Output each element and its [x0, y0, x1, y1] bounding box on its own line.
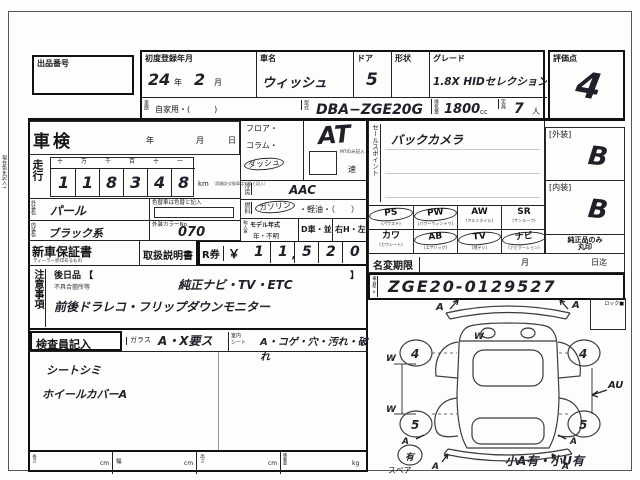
r-ticket-digit: 0	[350, 244, 360, 260]
front-bumper-inner	[450, 313, 566, 320]
note-line1: 純正ナビ・TV・ETC	[178, 276, 293, 293]
load-unit: kg	[352, 461, 359, 468]
front-left-door-flap	[436, 342, 458, 378]
shaken-row: 車検 年 月 日	[28, 121, 240, 155]
equip-ps: PS	[369, 206, 413, 223]
windshield-glyph	[473, 350, 543, 386]
spare-label: スペア	[388, 466, 411, 474]
ext-color-value: パール	[50, 202, 86, 219]
mileage-digit: 4	[154, 173, 165, 192]
rear-left-door-flap	[435, 398, 458, 437]
car-name-label: 車名	[260, 54, 276, 63]
length-label: 長さ	[31, 454, 36, 463]
middle-column: フロア・ コラム・ ダッシュ AT MTのみ記入 速 冷房 AAC 燃料 ガソリ…	[240, 121, 368, 241]
r-ticket-digit: 5	[302, 244, 312, 260]
genuine-note-line2: 丸印	[546, 244, 624, 251]
name-change-row: 名変期限 月 日迄	[368, 254, 625, 273]
mark-left-w2: W	[386, 405, 397, 415]
rear-bumper-inner	[448, 449, 568, 455]
colors-block: 外装色 パール 内装色 ブラック系 色替車は色替と記入 外装カラーNo. 070	[28, 199, 240, 241]
displacement-label: 排気量	[431, 99, 438, 114]
shaken-year-label: 年	[146, 136, 154, 145]
equipment-row2: カワ(カワシート) AB(エアバッグ) TV(地デジ) ナビ(ナビゲーション)	[368, 230, 545, 254]
header-table: 初度登録年月 24 年 2 月 車名 ウィッシュ ドア 5 形状 グレード 1.…	[140, 50, 545, 120]
manual-label: 取扱説明書	[143, 247, 193, 262]
equip-tv-name: (地デジ)	[460, 245, 499, 250]
mark-bottom-left-a: A	[401, 437, 409, 447]
model-year-label: モデル年式	[250, 220, 280, 229]
auction-sheet: 現在色を記入→ 出品番号 初度登録年月 24 年 2 月 車名 ウィッシュ ドア…	[0, 0, 640, 480]
rear-window-glyph	[472, 418, 544, 444]
digit-header: 一	[177, 159, 183, 166]
docs-row: 新車保証書 ディーラー捺印あるもの 取扱説明書 R券 ￥ 1 1 , 5 2 0	[28, 241, 368, 266]
recycle-ticket-label: R券	[202, 246, 224, 261]
later-item-label: 後日品 【	[54, 268, 93, 281]
glass-label: ガラス	[126, 337, 151, 345]
shaken-day-label: 日	[228, 136, 236, 145]
exterior-grade-value: B	[586, 141, 609, 173]
model-code-label: 型式	[301, 100, 308, 110]
mileage-digit: 1	[82, 173, 93, 192]
width-unit: cm	[184, 461, 193, 468]
mark-spare-present: 有	[405, 452, 416, 463]
rear-bumper-right-arrow	[552, 454, 558, 462]
capacity-value: 7	[514, 101, 524, 117]
notes-label: 注意事項	[32, 269, 46, 327]
chassis-label: 車台No.	[371, 276, 378, 297]
mark-wheel-rr: 5	[579, 418, 587, 432]
glass-options: A・X要ス	[158, 332, 213, 349]
interior-grade-label: [内装]	[549, 183, 571, 192]
car-name-value: ウィッシュ	[262, 72, 327, 91]
seat-options: A・コゲ・穴・汚れ・破れ	[260, 333, 368, 363]
margin-note: 現在色を記入→	[1, 155, 6, 191]
displacement-unit: cc	[480, 109, 488, 117]
equip-aw-name: (アルミホイル)	[460, 218, 499, 223]
equip-leather: カワ	[369, 232, 413, 242]
equip-navi-name: (ナビゲーション)	[504, 245, 544, 250]
mark-front-left-a: A	[435, 302, 444, 313]
width-label: 幅	[116, 459, 122, 465]
equip-aw: AW	[458, 208, 501, 218]
car-diagram: A A W W W 4 4 5 5 AU A A A A 有 スペア	[386, 296, 631, 474]
mark-wheel-rl: 5	[411, 418, 419, 432]
equip-airbag-name: (エアバッグ)	[416, 245, 455, 250]
length-unit: cm	[100, 461, 109, 468]
measurements-row: 長さ cm 幅 cm 高さ cm 積載量 kg	[28, 450, 368, 472]
capacity-label: 定員	[498, 99, 505, 109]
defect-label: 不具合箇所等	[54, 282, 90, 291]
door-label: ドア	[357, 54, 373, 63]
name-change-label: 名変期限	[373, 257, 420, 272]
auction-number-label: 出品番号	[37, 59, 69, 68]
mileage-digit: 3	[130, 173, 141, 192]
front-left-damage-arrow	[450, 300, 458, 309]
month-suffix: 月	[214, 78, 222, 87]
inspector-label: 検査員記入	[36, 336, 91, 351]
int-color-value: ブラック系	[48, 225, 103, 241]
fuel-label: 燃料	[243, 202, 252, 214]
seat-label-2: シート	[231, 339, 258, 346]
name-change-until: 日迄	[591, 258, 607, 267]
grade-label: グレード	[433, 54, 465, 63]
digit-header: 百	[129, 159, 135, 166]
score-box: 評価点 4	[548, 50, 625, 120]
chassis-value: ZGE20-0129527	[388, 277, 557, 296]
fuel-option-gasoline: ガソリン	[255, 200, 296, 215]
mileage-digit: 8	[178, 173, 189, 192]
digit-header: 十	[153, 159, 159, 166]
shaken-label: 車検	[33, 127, 73, 152]
mileage-grid: 十 万 千 百 十 一 1 1 8 3 4 8	[50, 157, 194, 197]
load-label: 積載量	[283, 453, 287, 465]
equip-navi: ナビ	[502, 230, 546, 247]
auction-number-box: 出品番号	[32, 55, 134, 95]
warranty-note: ディーラー捺印あるもの	[33, 258, 82, 264]
shift-option-dash: ダッシュ	[244, 156, 285, 172]
height-unit: cm	[268, 461, 277, 468]
first-reg-label: 初度登録年月	[145, 54, 193, 63]
name-change-month: 月	[521, 258, 529, 267]
shape-label: 形状	[395, 54, 411, 63]
equip-sr-name: (サンルーフ)	[504, 218, 544, 223]
genuine-parts-note: 純正品のみ 丸印	[545, 235, 625, 254]
mark-rear-right-a: A	[561, 462, 569, 472]
sales-point-label: セールスポイント	[371, 124, 381, 202]
shift-option-column: コラム・	[246, 141, 278, 150]
digit-header: 十	[57, 159, 63, 166]
speed-label: 速	[348, 165, 356, 174]
mileage-label: 走行	[32, 159, 43, 181]
transmission-value: AT	[317, 120, 352, 150]
inspector-divider	[218, 352, 219, 450]
mark-front-right-a: A	[571, 300, 580, 311]
interior-grade-box: [内装] B	[545, 181, 625, 235]
digit-header: 千	[105, 159, 111, 166]
interior-grade-value: B	[586, 194, 609, 226]
handle-label: 右H・左H	[335, 225, 369, 234]
color-change-box	[154, 207, 234, 218]
mark-left-w1: W	[386, 354, 397, 364]
mark-wheel-fr: 4	[578, 347, 587, 361]
height-label: 高さ	[199, 454, 204, 463]
mark-wheel-fl: 4	[410, 347, 419, 361]
mileage-digit: 1	[58, 173, 69, 192]
ac-value: AAC	[289, 183, 316, 197]
history-value: 自家用・( )	[155, 105, 217, 114]
ac-label: 冷房	[243, 183, 252, 195]
history-label: 車歴	[143, 100, 148, 110]
seat-label-1: 室内	[231, 332, 258, 339]
d-car-label: D車・並	[301, 225, 332, 234]
capacity-unit: 人	[532, 107, 540, 116]
color-change-note: 色替車は色替と記入	[152, 200, 202, 206]
mark-rear-left-a: A	[431, 462, 439, 472]
left-measure-bracket	[394, 364, 416, 414]
later-item-bracket: 】	[350, 268, 359, 281]
exterior-grade-box: [外装] B	[545, 127, 625, 181]
first-reg-month: 2	[194, 70, 205, 89]
inspector-note2: ホイールカバーA	[42, 386, 127, 402]
digit-header: 万	[81, 159, 87, 166]
exterior-grade-label: [外装]	[549, 130, 571, 139]
equipment-row1: PS(パワステ) PW(パワーウィンドウ) AW(アルミホイル) SR(サンルー…	[368, 206, 545, 230]
km-label: km	[198, 181, 209, 189]
equip-airbag: AB	[414, 230, 457, 247]
sales-point-value: バックカメラ	[391, 131, 463, 148]
mt-entry-box	[309, 151, 337, 175]
model-code-value: DBA−ZGE20G	[316, 102, 423, 118]
ext-color-label: 外装色	[30, 200, 35, 215]
mt-note: MTのみ記入	[340, 149, 365, 155]
r-ticket-digit: 2	[326, 244, 336, 260]
guide-dashes	[432, 353, 568, 414]
shaken-month-label: 月	[196, 136, 204, 145]
inspector-note1: シートシミ	[46, 362, 101, 378]
note-line2: 前後ドラレコ・フリップダウンモニター	[54, 298, 270, 315]
mark-bottom-right-a: A	[569, 437, 577, 447]
score-label: 評価点	[553, 54, 577, 63]
door-value: 5	[366, 70, 378, 90]
right-side-damage-arrow	[592, 390, 607, 397]
equip-pw: PW	[414, 206, 457, 223]
yen-symbol: ￥	[228, 245, 240, 262]
r-ticket-comma: ,	[292, 248, 296, 261]
mileage-block: 走行 十 万 千 百 十 一 1 1 8 3 4 8	[28, 155, 240, 199]
sales-point-box: セールスポイント バックカメラ	[368, 121, 545, 206]
equip-pw-name: (パワーウィンドウ)	[416, 221, 455, 226]
displacement-value: 1800	[444, 102, 480, 117]
r-ticket-digit: 1	[254, 244, 264, 260]
notes-section: 注意事項 後日品 【 】 不具合箇所等 純正ナビ・TV・ETC 前後ドラレコ・フ…	[28, 266, 368, 330]
fuel-option-diesel: ・軽油・（ ）	[299, 205, 359, 214]
equip-ps-name: (パワステ)	[371, 221, 411, 226]
equip-leather-name: (カワシート)	[371, 242, 411, 247]
first-reg-year: 24	[148, 70, 170, 89]
rear-bumper-left-arrow	[442, 454, 448, 462]
equip-tv: TV	[458, 230, 501, 247]
mark-right-au: AU	[607, 380, 623, 391]
inspector-section: 検査員記入 ガラス A・X要ス 室内 シート A・コゲ・穴・汚れ・破れ シートシ…	[28, 330, 368, 450]
r-ticket-digit: 1	[278, 244, 288, 260]
shift-option-floor: フロア・	[246, 124, 278, 133]
import-label: 輸入車	[242, 220, 247, 234]
right-mirror-glyph	[521, 328, 535, 338]
front-right-damage-arrow	[560, 300, 568, 309]
grade-value: 1.8X HIDセレクション	[433, 74, 547, 89]
model-year-options: 年・不明	[253, 230, 279, 240]
ext-color-no-value: 070	[178, 225, 205, 240]
equip-sr: SR	[502, 208, 546, 218]
mark-hood-w: W	[474, 332, 485, 342]
score-value: 4	[573, 64, 605, 109]
int-color-label: 内装色	[30, 222, 35, 237]
mileage-digit: 8	[106, 173, 117, 192]
year-suffix: 年	[174, 78, 182, 87]
